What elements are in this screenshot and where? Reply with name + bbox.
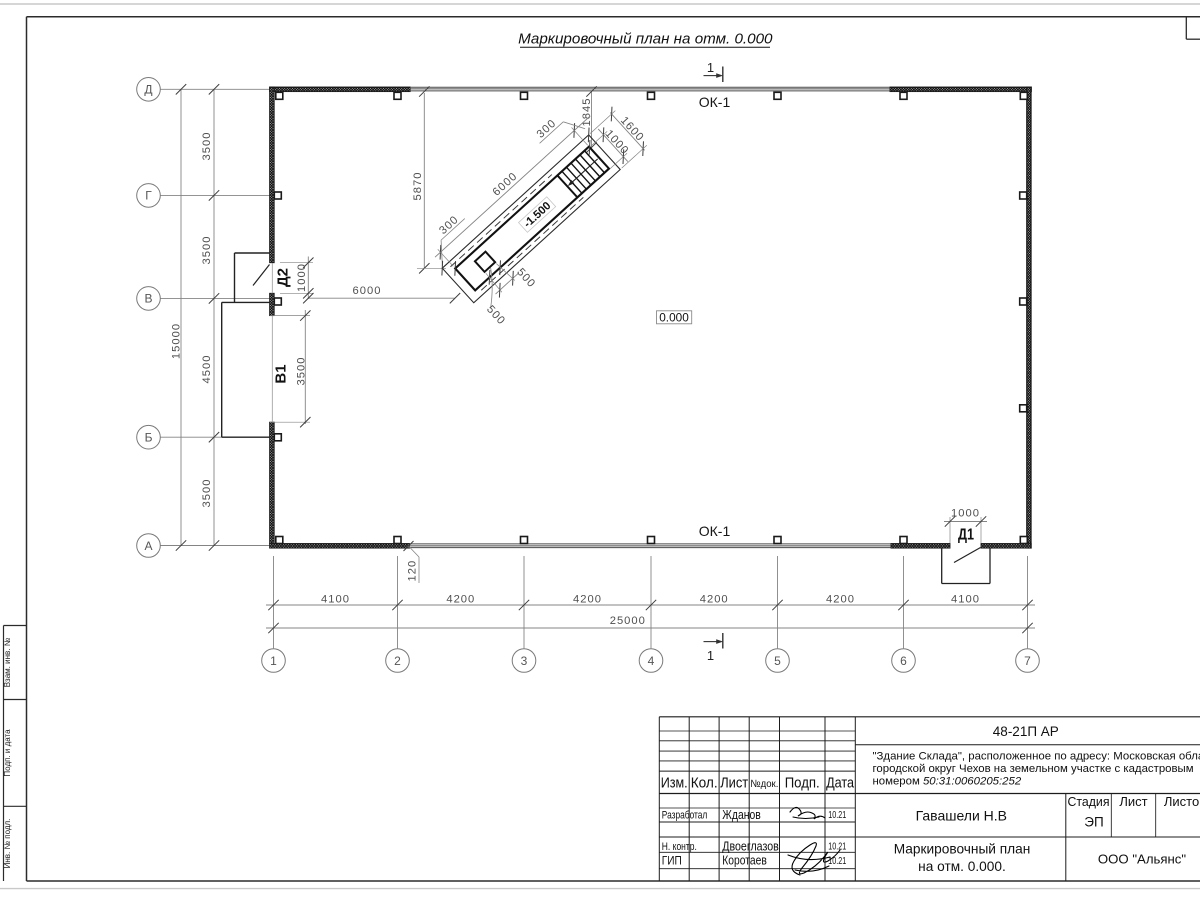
svg-text:В1: В1 [273, 364, 290, 383]
svg-text:Кол.: Кол. [691, 775, 718, 792]
svg-text:на отм. 0.000.: на отм. 0.000. [918, 859, 1006, 874]
svg-text:3500: 3500 [296, 357, 308, 386]
svg-text:15000: 15000 [171, 323, 183, 359]
svg-text:6000: 6000 [353, 285, 382, 297]
svg-text:5870: 5870 [412, 172, 424, 201]
svg-text:Подп. и дата: Подп. и дата [3, 729, 12, 777]
svg-text:3500: 3500 [201, 479, 213, 508]
svg-text:1: 1 [707, 648, 714, 663]
svg-text:4100: 4100 [951, 593, 980, 605]
svg-text:номером 50:31:0060205:252: номером 50:31:0060205:252 [873, 776, 1022, 788]
svg-text:1000: 1000 [296, 263, 308, 292]
svg-text:ГИП: ГИП [662, 856, 682, 868]
svg-text:5: 5 [774, 654, 781, 668]
svg-text:48-21П АР: 48-21П АР [993, 724, 1059, 739]
svg-text:Двоеглазов: Двоеглазов [722, 838, 779, 853]
svg-text:А: А [144, 539, 152, 553]
svg-text:ООО "Альянс": ООО "Альянс" [1098, 852, 1186, 867]
svg-text:Б: Б [145, 431, 153, 445]
svg-text:ОК-1: ОК-1 [699, 523, 731, 539]
svg-text:4200: 4200 [826, 593, 855, 605]
svg-text:Лист: Лист [1119, 794, 1147, 809]
svg-text:ОК-1: ОК-1 [699, 94, 731, 110]
svg-text:0.000: 0.000 [659, 310, 689, 324]
svg-text:Разработал: Разработал [662, 809, 708, 821]
svg-text:10.21: 10.21 [828, 855, 846, 867]
svg-text:В: В [144, 292, 152, 306]
svg-text:3500: 3500 [201, 132, 213, 161]
svg-text:4200: 4200 [573, 593, 602, 605]
svg-text:1000: 1000 [951, 508, 980, 520]
svg-text:4200: 4200 [446, 593, 475, 605]
svg-text:3500: 3500 [201, 236, 213, 265]
svg-text:Д2: Д2 [275, 268, 292, 287]
svg-text:120: 120 [407, 560, 419, 582]
svg-text:Д1: Д1 [958, 527, 974, 544]
svg-text:ЭП: ЭП [1084, 815, 1103, 830]
svg-text:10.21: 10.21 [828, 809, 846, 821]
svg-text:Маркировочный план: Маркировочный план [894, 842, 1031, 857]
svg-text:4500: 4500 [201, 355, 213, 384]
svg-text:Взам. инв. №: Взам. инв. № [3, 637, 12, 687]
svg-text:Маркировочный план на отм. 0.0: Маркировочный план на отм. 0.000 [518, 31, 773, 48]
svg-text:Г: Г [145, 189, 152, 203]
svg-text:Дата: Дата [826, 775, 855, 792]
svg-text:10.21: 10.21 [828, 840, 846, 852]
svg-text:Гавашели Н.В: Гавашели Н.В [916, 808, 1007, 824]
svg-text:4100: 4100 [321, 593, 350, 605]
svg-text:Лист: Лист [720, 775, 748, 792]
svg-text:"Здание Склада", расположенное: "Здание Склада", расположенное по адресу… [873, 750, 1200, 762]
svg-text:4: 4 [648, 654, 655, 668]
svg-text:Листов: Листов [1164, 794, 1200, 809]
svg-text:7: 7 [1024, 654, 1031, 668]
svg-text:Подп.: Подп. [785, 775, 820, 792]
svg-text:3: 3 [521, 654, 528, 668]
svg-text:6: 6 [900, 654, 907, 668]
svg-text:Изм.: Изм. [661, 775, 688, 792]
svg-text:Коротаев: Коротаев [722, 853, 767, 868]
svg-text:Д: Д [144, 83, 152, 97]
svg-text:городской округ Чехов на земел: городской округ Чехов на земельном участ… [873, 763, 1194, 775]
svg-text:1: 1 [270, 654, 277, 668]
svg-text:1: 1 [707, 60, 714, 75]
svg-text:№док.: №док. [750, 778, 778, 790]
svg-text:Стадия: Стадия [1068, 794, 1110, 809]
svg-text:2: 2 [394, 654, 401, 668]
svg-text:Инв. № подл.: Инв. № подл. [3, 819, 12, 869]
svg-text:Н. контр.: Н. контр. [662, 841, 697, 853]
svg-text:25000: 25000 [610, 615, 646, 627]
svg-text:4200: 4200 [700, 593, 729, 605]
svg-text:Жданов: Жданов [722, 807, 761, 822]
